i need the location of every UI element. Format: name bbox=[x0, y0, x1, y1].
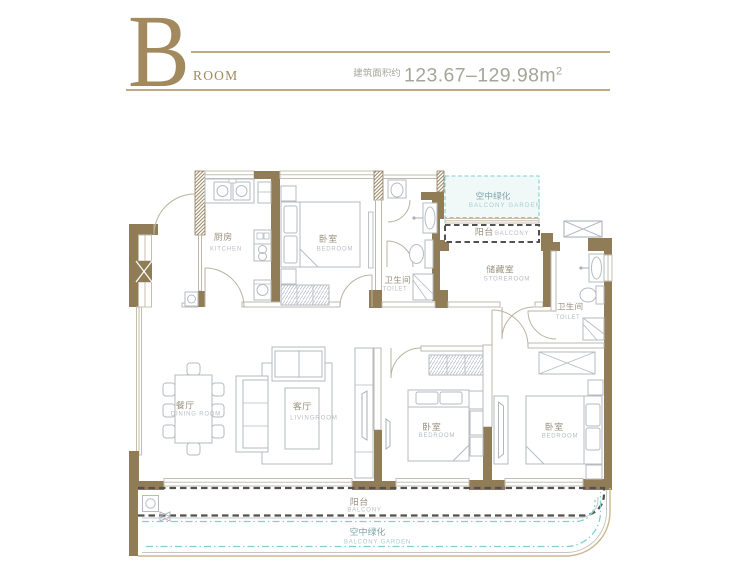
svg-text:TOILET: TOILET bbox=[556, 315, 581, 321]
svg-text:BEDROOM: BEDROOM bbox=[542, 434, 579, 440]
svg-text:TOILET: TOILET bbox=[383, 287, 408, 293]
svg-text:DINING ROOM: DINING ROOM bbox=[171, 412, 221, 418]
svg-text:LIVINGROOM: LIVINGROOM bbox=[290, 415, 338, 422]
svg-text:BALCONY: BALCONY bbox=[495, 231, 529, 237]
svg-text:123.67–129.98m2: 123.67–129.98m2 bbox=[404, 65, 563, 87]
svg-text:STOREROOM: STOREROOM bbox=[484, 277, 530, 283]
svg-text:BALCONY GARDEN: BALCONY GARDEN bbox=[344, 540, 411, 546]
svg-text:KITCHEN: KITCHEN bbox=[210, 247, 242, 253]
svg-text:BEDROOM: BEDROOM bbox=[419, 433, 456, 439]
svg-text:B: B bbox=[128, 0, 190, 109]
svg-text:BEDROOM: BEDROOM bbox=[317, 247, 354, 253]
svg-text:ROOM: ROOM bbox=[193, 68, 238, 83]
svg-text:BALCONY GARDEN: BALCONY GARDEN bbox=[469, 202, 541, 209]
svg-text:BALCONY: BALCONY bbox=[347, 508, 381, 514]
